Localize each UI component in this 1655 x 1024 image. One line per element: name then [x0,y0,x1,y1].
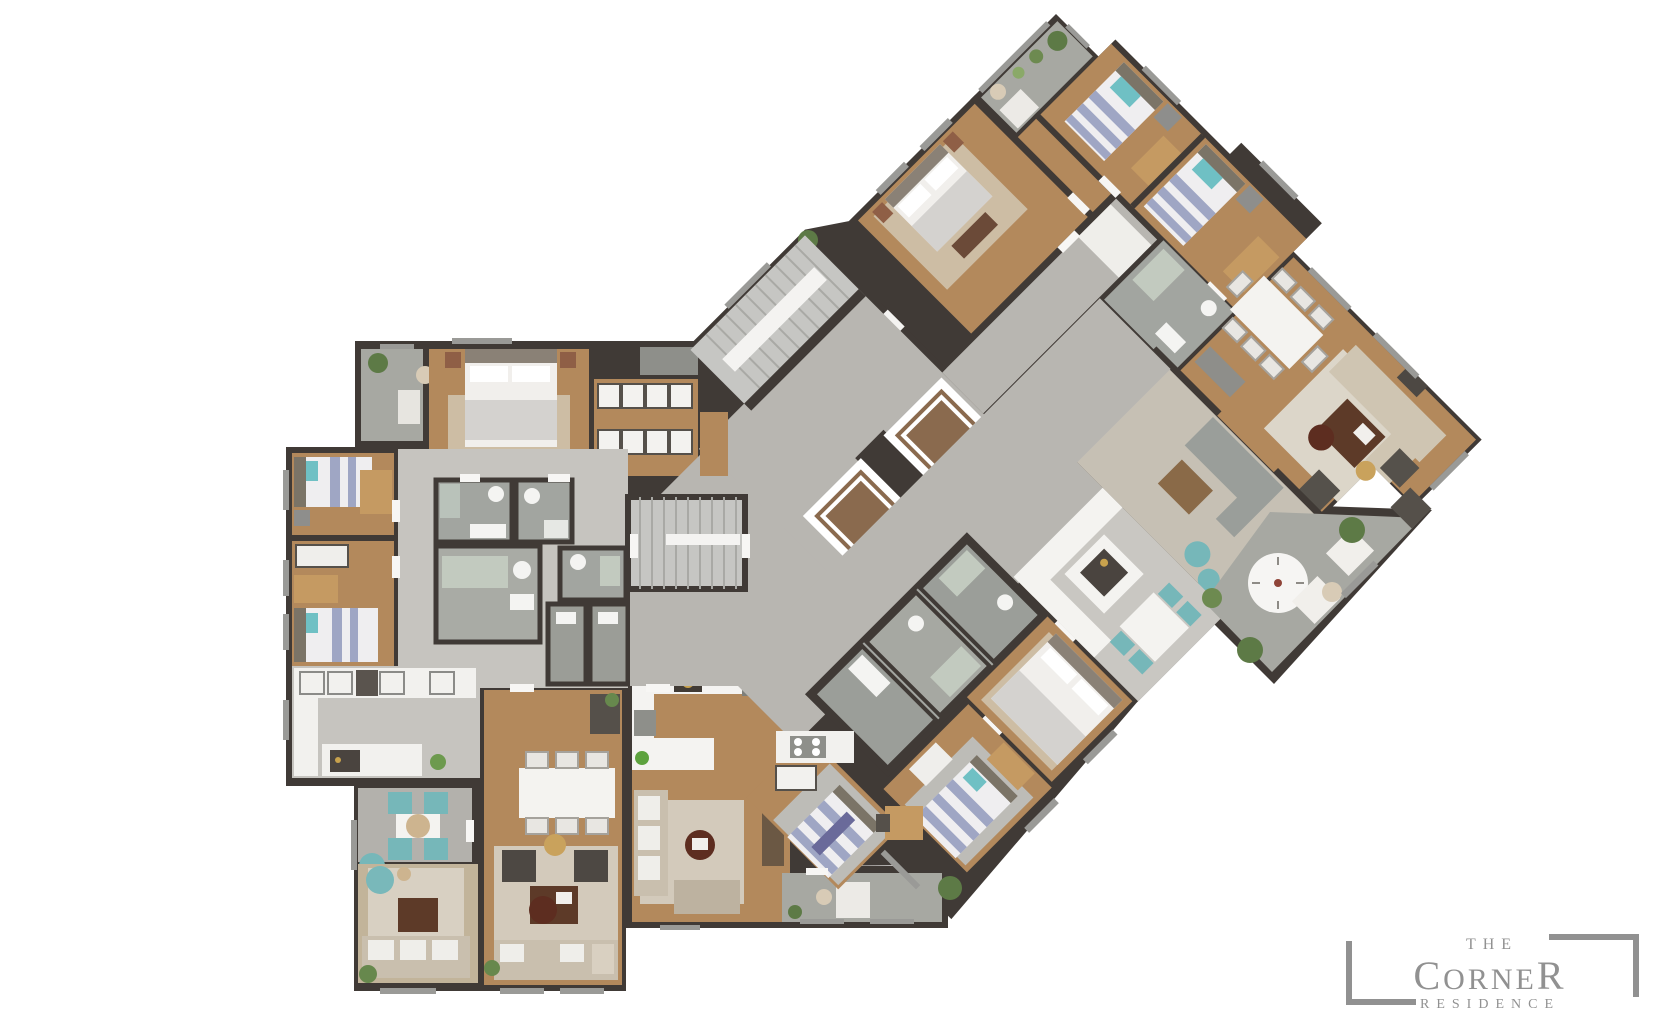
svg-text:THE: THE [1466,936,1518,953]
svg-text:RESIDENCE: RESIDENCE [1420,997,1560,1012]
